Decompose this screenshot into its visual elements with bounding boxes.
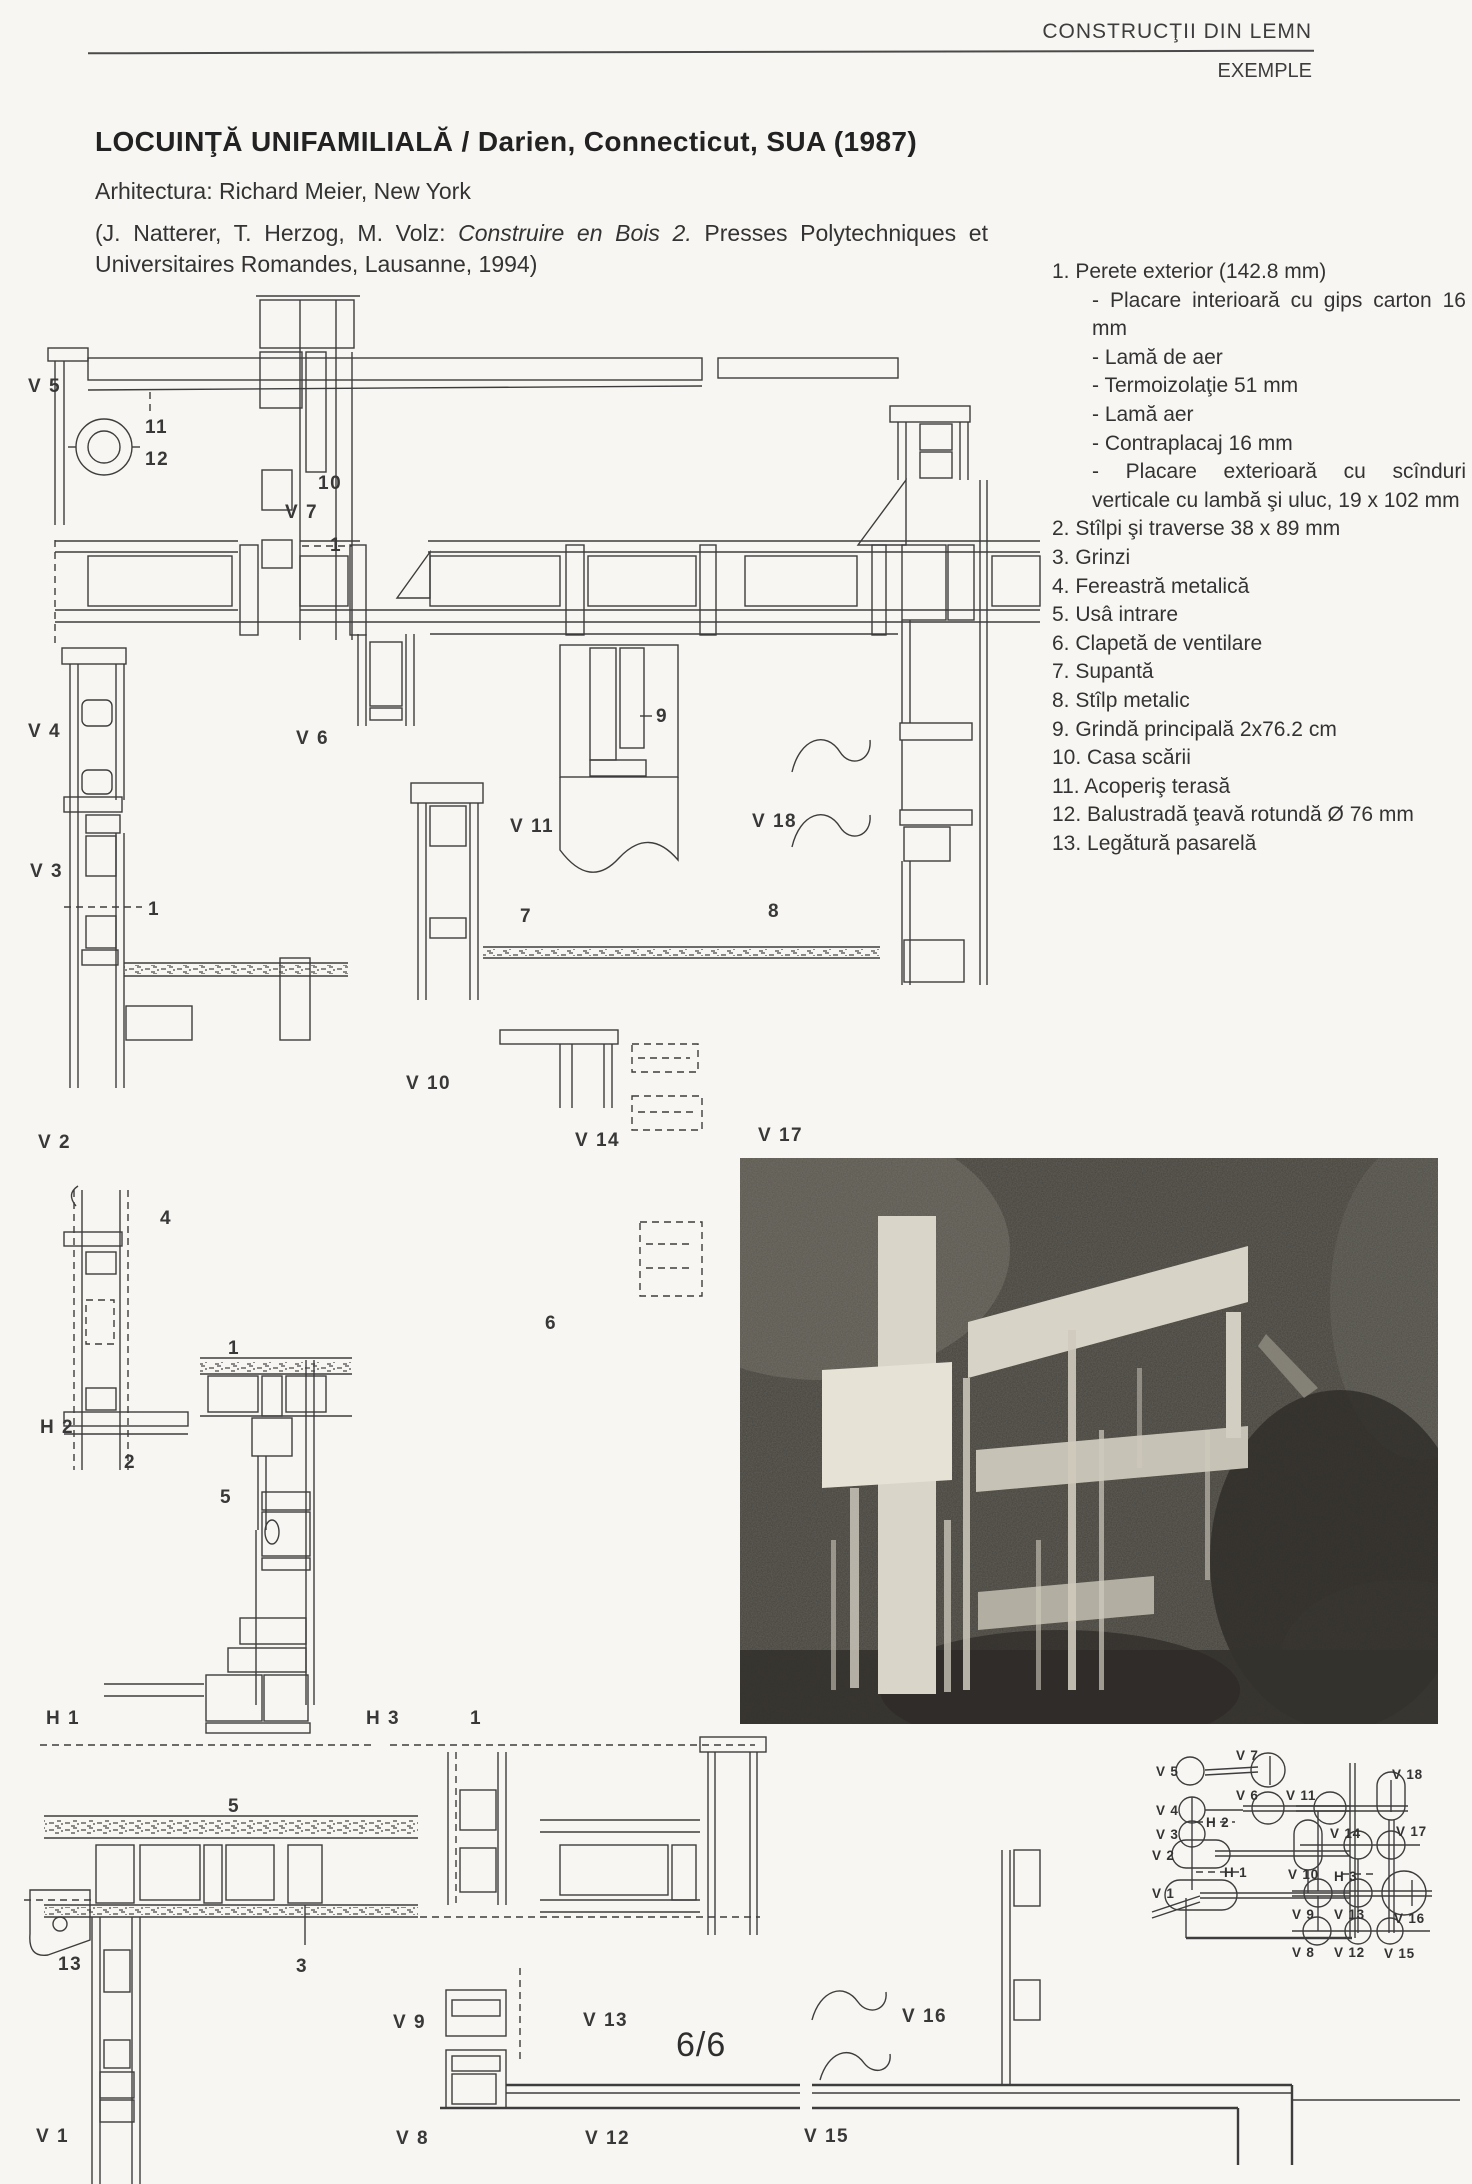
key-diagram-label: V 6	[1236, 1788, 1259, 1803]
key-diagram-label: V 9	[1292, 1907, 1315, 1922]
drawing-label: V 7	[285, 502, 318, 523]
detail-v11-post	[411, 783, 483, 1000]
key-diagram-label: V 14	[1330, 1826, 1361, 1841]
drawing-label: V 11	[510, 816, 554, 837]
legend-item: 2. Stîlpi şi traverse 38 x 89 mm	[1052, 515, 1466, 544]
drawing-label: 5	[228, 1796, 240, 1817]
drawing-label: V 17	[758, 1125, 803, 1146]
drawing-label: V 9	[393, 2012, 426, 2033]
drawing-label: 1	[470, 1708, 482, 1729]
section-label: EXEMPLE	[900, 60, 1312, 83]
key-diagram-label: V 18	[1392, 1767, 1423, 1782]
legend-list: 1. Perete exterior (142.8 mm)- Placare i…	[1052, 258, 1466, 858]
drawing-label: 4	[160, 1208, 172, 1229]
legend-item: - Lamă aer	[1052, 401, 1466, 430]
scanned-book-page: V 5111210V 71V 4V 69V 31V 11V 1878V 10V …	[0, 0, 1472, 2184]
drawing-label: 1	[148, 899, 160, 920]
drawing-label: H 3	[366, 1708, 400, 1729]
drawing-label: V 13	[583, 2010, 628, 2031]
legend-item: - Placare interioară cu gips carton 16 m…	[1052, 287, 1466, 344]
legend-item: 12. Balustradă ţeavă rotundă Ø 76 mm	[1052, 801, 1466, 830]
detail-floor-band	[55, 541, 1040, 635]
detail-v6-column	[358, 634, 414, 726]
drawing-label: 2	[124, 1452, 136, 1473]
key-diagram-label: H 1	[1224, 1865, 1247, 1880]
key-diagram-label: V 11	[1286, 1788, 1316, 1803]
drawing-label: V 15	[804, 2126, 849, 2147]
key-diagram-label: V 13	[1334, 1907, 1365, 1922]
citation-part1: (J. Natterer, T. Herzog, M. Volz:	[95, 220, 458, 246]
key-diagram-label: V 4	[1156, 1803, 1179, 1818]
legend-item: 1. Perete exterior (142.8 mm)	[1052, 258, 1466, 287]
legend-item: 8. Stîlp metalic	[1052, 687, 1466, 716]
page-title: LOCUINŢĂ UNIFAMILIALĂ / Darien, Connecti…	[95, 126, 1195, 158]
key-diagram-label: V 1	[1152, 1886, 1175, 1901]
drawing-label: V 14	[575, 1130, 620, 1151]
detail-right-wall	[718, 358, 987, 985]
legend-item: 4. Fereastră metalică	[1052, 573, 1466, 602]
legend-item: 13. Legătură pasarelă	[1052, 830, 1466, 859]
detail-main-girder	[560, 645, 678, 872]
drawing-label: V 16	[902, 2006, 947, 2027]
legend-item: 10. Casa scării	[1052, 744, 1466, 773]
legend-item: - Lamă de aer	[1052, 344, 1466, 373]
drawing-label: 13	[58, 1954, 82, 1975]
detail-lower-ceiling	[483, 947, 880, 958]
key-diagram-label: V 15	[1384, 1946, 1415, 1961]
architect-line: Arhitectura: Richard Meier, New York	[95, 178, 895, 205]
drawing-label: 8	[768, 901, 780, 922]
legend-item: - Termoizolaţie 51 mm	[1052, 372, 1466, 401]
key-diagram-label: V 3	[1156, 1827, 1179, 1842]
citation: (J. Natterer, T. Herzog, M. Volz: Constr…	[95, 218, 988, 280]
book-title: CONSTRUCŢII DIN LEMN	[700, 20, 1312, 44]
drawing-label: V 18	[752, 811, 797, 832]
drawing-label: 6	[545, 1313, 557, 1334]
key-diagram-label: V 16	[1394, 1911, 1425, 1926]
legend-item: 11. Acoperiş terasă	[1052, 773, 1466, 802]
legend-item: 7. Supantă	[1052, 658, 1466, 687]
key-diagram-label: V 7	[1236, 1748, 1259, 1763]
drawing-label: 1	[330, 535, 342, 556]
detail-v4-v3-column	[62, 648, 348, 1088]
drawing-label: V 5	[28, 376, 61, 397]
legend-item: - Placare exterioară cu scînduri vertica…	[1052, 458, 1466, 515]
drawing-label: H 2	[40, 1417, 74, 1438]
detail-v10-v14	[500, 1030, 702, 1296]
drawing-label: H 1	[46, 1708, 80, 1729]
key-diagram-label: V 2	[1152, 1848, 1175, 1863]
drawing-label: V 6	[296, 728, 329, 749]
detail-v5-roof	[48, 348, 702, 645]
key-diagram-label: H 3	[1334, 1869, 1357, 1884]
legend-item: 6. Clapetă de ventilare	[1052, 630, 1466, 659]
legend-item: 5. Usâ intrare	[1052, 601, 1466, 630]
page-number: 6/6	[676, 2026, 726, 2065]
drawing-label: 1	[228, 1338, 240, 1359]
drawing-label: V 4	[28, 721, 61, 742]
drawing-label: 7	[520, 906, 532, 927]
key-diagram-label: V 8	[1292, 1945, 1315, 1960]
drawing-label: 3	[296, 1956, 308, 1977]
drawing-label: 11	[145, 417, 168, 438]
drawing-label: V 12	[585, 2128, 630, 2149]
drawing-label: V 3	[30, 861, 63, 882]
drawing-label: 5	[220, 1487, 232, 1508]
drawing-label: V 8	[396, 2128, 429, 2149]
legend-item: 3. Grinzi	[1052, 544, 1466, 573]
key-diagram-labels: V 5V 7V 6V 4H 2V 3V 2H 1V 1V 11V 18V 14V…	[1152, 1748, 1427, 1961]
legend-item: - Contraplacaj 16 mm	[1052, 430, 1466, 459]
key-diagram-label: V 5	[1156, 1764, 1179, 1779]
legend-item: 9. Grindă principală 2x76.2 cm	[1052, 716, 1466, 745]
detail-stair-wall	[256, 296, 360, 640]
key-diagram-label: V 12	[1334, 1945, 1365, 1960]
key-diagram-label: H 2	[1206, 1815, 1229, 1830]
drawing-label: 9	[656, 706, 668, 727]
citation-italic: Construire en Bois 2.	[458, 220, 692, 246]
key-diagram-label: V 10	[1288, 1867, 1319, 1882]
drawing-label: 12	[145, 449, 169, 470]
building-photo	[630, 1120, 1472, 1750]
key-diagram-label: V 17	[1396, 1824, 1427, 1839]
drawing-label: V 10	[406, 1073, 451, 1094]
drawing-label: V 2	[38, 1132, 71, 1153]
drawing-label: V 1	[36, 2126, 69, 2147]
drawing-label: 10	[318, 473, 342, 494]
